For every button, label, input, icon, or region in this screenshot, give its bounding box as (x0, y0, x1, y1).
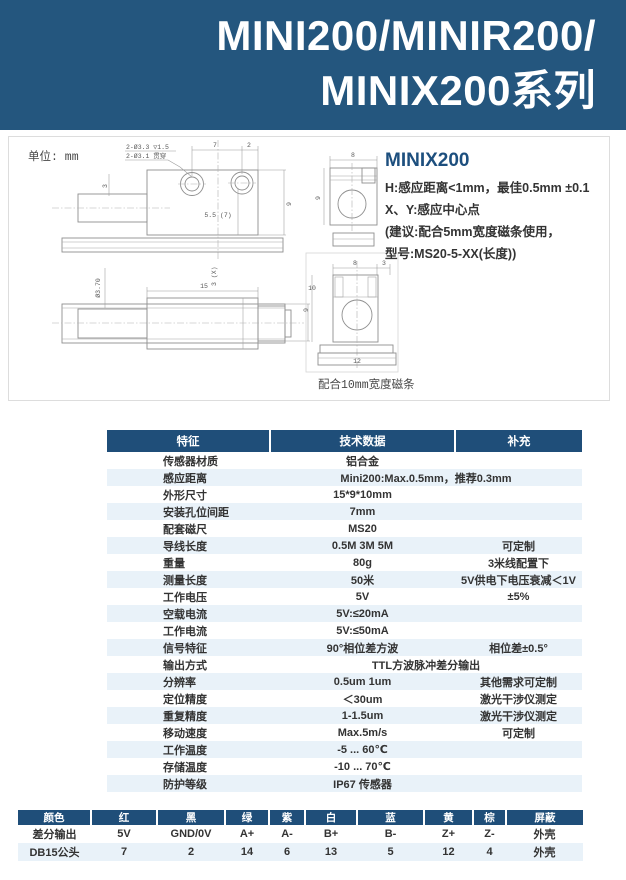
wiring-cell: 5V (91, 825, 157, 843)
spec-tech-cell: Mini200:Max.0.5mm，推荐0.3mm (270, 469, 582, 486)
spec-tech-cell: 7mm (270, 503, 455, 520)
wiring-header-cell: 紫 (269, 810, 305, 825)
spec-supp-cell (455, 741, 582, 758)
end-bottom-base: 12 (353, 358, 361, 365)
spec-supp-cell: ±5% (455, 588, 582, 605)
wiring-header-cell: 黄 (424, 810, 473, 825)
spec-row: 输出方式TTL方波脉冲差分输出 (107, 656, 582, 673)
wiring-cell: 外壳 (506, 843, 583, 861)
spec-row: 重量80g3米线配置下 (107, 554, 582, 571)
spec-feature-cell: 工作电压 (107, 588, 270, 605)
product-note-line2: X、Y:感应中心点 (385, 204, 622, 217)
product-note-line3: (建议:配合5mm宽度磁条使用， (385, 226, 622, 239)
end-view-top-drawing: 8 9 (315, 152, 377, 246)
spec-row: 存储温度-10 ... 70℃ (107, 758, 582, 775)
spec-row: 感应距离Mini200:Max.0.5mm，推荐0.3mm (107, 469, 582, 486)
spec-supp-cell: 其他需求可定制 (455, 673, 582, 690)
spec-row: 测量长度50米5V供电下电压衰减＜1V (107, 571, 582, 588)
wiring-cell: 12 (424, 843, 473, 861)
wiring-header-row: 颜色红黑绿紫白蓝黄棕屏蔽 (18, 810, 583, 825)
spec-tech-cell: -5 ... 60℃ (270, 741, 455, 758)
spec-tech-cell: IP67 传感器 (270, 775, 455, 792)
spec-tech-cell: 80g (270, 554, 455, 571)
spec-row: 防护等级IP67 传感器 (107, 775, 582, 792)
spec-row: 移动速度Max.5m/s可定制 (107, 724, 582, 741)
spec-feature-cell: 安装孔位间距 (107, 503, 270, 520)
wiring-header-cell: 绿 (225, 810, 269, 825)
end-bottom-width: 8 (353, 260, 357, 267)
spec-feature-cell: 传感器材质 (107, 452, 270, 469)
dim-depth: 5.5 (7) (204, 212, 231, 219)
dim-hole-pitch: 7 (213, 142, 217, 149)
spec-header-feature: 特征 (107, 430, 270, 452)
spec-supp-cell (455, 486, 582, 503)
spec-supp-cell: 5V供电下电压衰减＜1V (455, 571, 582, 588)
end-top-width: 8 (351, 152, 355, 159)
spec-tech-cell: 15*9*10mm (270, 486, 455, 503)
spec-feature-cell: 重量 (107, 554, 270, 571)
wiring-cell: Z- (473, 825, 506, 843)
end-view-bottom-drawing: 8 3 9 12 配合10mm宽度磁条 (303, 253, 415, 392)
wiring-cell: 外壳 (506, 825, 583, 843)
dim-edge: 2 (247, 142, 251, 149)
wiring-row: DB15公头72146135124外壳 (18, 843, 583, 861)
dim-x-offset: 3 (X) (211, 266, 218, 286)
spec-feature-cell: 工作温度 (107, 741, 270, 758)
wiring-header-cell: 蓝 (357, 810, 424, 825)
dim-left: 3 (102, 184, 109, 188)
spec-supp-cell: 3米线配置下 (455, 554, 582, 571)
dim-length-15: 15 (200, 283, 208, 290)
spec-supp-cell (455, 758, 582, 775)
strip-caption: 配合10mm宽度磁条 (318, 377, 415, 392)
wiring-header-cell: 黑 (157, 810, 225, 825)
dim-right: 9 (286, 202, 293, 206)
spec-feature-cell: 空载电流 (107, 605, 270, 622)
dim-cable-dia: Ø3.70 (94, 278, 102, 298)
spec-feature-cell: 输出方式 (107, 656, 270, 673)
spec-tech-cell: 0.5M 3M 5M (270, 537, 455, 554)
spec-header-supp: 补充 (455, 430, 582, 452)
spec-tech-cell: 5V:≤50mA (270, 622, 455, 639)
spec-row: 工作电流5V:≤50mA (107, 622, 582, 639)
page-title-line1: MINI200/MINIR200/ (0, 8, 596, 63)
spec-tech-cell: 1-1.5um (270, 707, 455, 724)
wiring-table: 颜色红黑绿紫白蓝黄棕屏蔽 差分输出5VGND/0VA+A-B+B-Z+Z-外壳D… (18, 810, 583, 861)
spec-supp-cell: 可定制 (455, 724, 582, 741)
unit-label: 单位: mm (28, 149, 79, 164)
wiring-row: 差分输出5VGND/0VA+A-B+B-Z+Z-外壳 (18, 825, 583, 843)
spec-supp-cell: 相位差±0.5° (455, 639, 582, 656)
spec-row: 工作温度-5 ... 60℃ (107, 741, 582, 758)
spec-feature-cell: 测量长度 (107, 571, 270, 588)
wiring-cell: 4 (473, 843, 506, 861)
spec-row: 分辨率0.5um 1um其他需求可定制 (107, 673, 582, 690)
page-title-line2: MINIX200系列 (0, 63, 596, 118)
wiring-cell: 14 (225, 843, 269, 861)
spec-feature-cell: 感应距离 (107, 469, 270, 486)
spec-row: 信号特征90°相位差方波相位差±0.5° (107, 639, 582, 656)
product-note-line4: 型号:MS20-5-XX(长度)) (385, 248, 622, 261)
spec-supp-cell: 激光干涉仪测定 (455, 707, 582, 724)
wiring-cell: 2 (157, 843, 225, 861)
wiring-cell: 13 (305, 843, 357, 861)
hole-note-2: 2-Ø3.1 贯穿 (126, 151, 166, 160)
wiring-cell: 7 (91, 843, 157, 861)
spec-supp-cell (455, 605, 582, 622)
wiring-cell: GND/0V (157, 825, 225, 843)
spec-tech-cell: TTL方波脉冲差分输出 (270, 656, 582, 673)
spec-supp-cell: 激光干涉仪测定 (455, 690, 582, 707)
wiring-cell: 5 (357, 843, 424, 861)
spec-feature-cell: 移动速度 (107, 724, 270, 741)
wiring-cell: DB15公头 (18, 843, 91, 861)
spec-row: 定位精度＜30um激光干涉仪测定 (107, 690, 582, 707)
spec-supp-cell (455, 622, 582, 639)
wiring-header-cell: 白 (305, 810, 357, 825)
spec-supp-cell: 可定制 (455, 537, 582, 554)
wiring-cell: Z+ (424, 825, 473, 843)
spec-tech-cell: ＜30um (270, 690, 455, 707)
spec-table-section: 特征 技术数据 补充 传感器材质铝合金感应距离Mini200:Max.0.5mm… (107, 430, 582, 792)
wiring-cell: A+ (225, 825, 269, 843)
spec-row: 配套磁尺MS20 (107, 520, 582, 537)
hole-note-1: 2-Ø3.3 ▽1.5 (126, 143, 169, 151)
spec-row: 传感器材质铝合金 (107, 452, 582, 469)
spec-feature-cell: 定位精度 (107, 690, 270, 707)
top-view-drawing: 2-Ø3.3 ▽1.5 2-Ø3.1 贯穿 7 2 5.5 (7) 3 9 (52, 140, 293, 259)
wiring-header-cell: 屏蔽 (506, 810, 583, 825)
spec-feature-cell: 导线长度 (107, 537, 270, 554)
wiring-cell: B- (357, 825, 424, 843)
spec-row: 安装孔位间距7mm (107, 503, 582, 520)
spec-supp-cell (455, 452, 582, 469)
wiring-cell: 差分输出 (18, 825, 91, 843)
side-view-drawing: 15 Ø3.70 3 (X) 10 (52, 266, 316, 349)
product-note-title: MINIX200 (385, 150, 622, 172)
spec-row: 工作电压5V±5% (107, 588, 582, 605)
spec-feature-cell: 信号特征 (107, 639, 270, 656)
spec-tech-cell: MS20 (270, 520, 455, 537)
spec-tech-cell: 5V (270, 588, 455, 605)
spec-tech-cell: 5V:≤20mA (270, 605, 455, 622)
spec-row: 空载电流5V:≤20mA (107, 605, 582, 622)
wiring-header-cell: 红 (91, 810, 157, 825)
end-top-height: 9 (315, 196, 322, 200)
spec-header-row: 特征 技术数据 补充 (107, 430, 582, 452)
spec-feature-cell: 重复精度 (107, 707, 270, 724)
spec-header-tech: 技术数据 (270, 430, 455, 452)
end-bottom-height: 9 (303, 308, 310, 312)
spec-tech-cell: 0.5um 1um (270, 673, 455, 690)
wiring-table-section: 颜色红黑绿紫白蓝黄棕屏蔽 差分输出5VGND/0VA+A-B+B-Z+Z-外壳D… (18, 810, 583, 861)
spec-row: 导线长度0.5M 3M 5M可定制 (107, 537, 582, 554)
product-note: MINIX200 H:感应距离<1mm，最佳0.5mm ±0.1 X、Y:感应中… (385, 150, 622, 270)
spec-feature-cell: 存储温度 (107, 758, 270, 775)
spec-supp-cell (455, 503, 582, 520)
spec-supp-cell (455, 520, 582, 537)
spec-tech-cell: -10 ... 70℃ (270, 758, 455, 775)
spec-feature-cell: 分辨率 (107, 673, 270, 690)
spec-row: 重复精度1-1.5um激光干涉仪测定 (107, 707, 582, 724)
spec-feature-cell: 工作电流 (107, 622, 270, 639)
spec-table: 特征 技术数据 补充 传感器材质铝合金感应距离Mini200:Max.0.5mm… (107, 430, 582, 792)
spec-tech-cell: 50米 (270, 571, 455, 588)
wiring-cell: B+ (305, 825, 357, 843)
spec-supp-cell (455, 775, 582, 792)
product-note-line1: H:感应距离<1mm，最佳0.5mm ±0.1 (385, 182, 622, 195)
wiring-header-cell: 颜色 (18, 810, 91, 825)
spec-feature-cell: 防护等级 (107, 775, 270, 792)
wiring-cell: A- (269, 825, 305, 843)
spec-tech-cell: 90°相位差方波 (270, 639, 455, 656)
wiring-cell: 6 (269, 843, 305, 861)
spec-row: 外形尺寸15*9*10mm (107, 486, 582, 503)
spec-tech-cell: Max.5m/s (270, 724, 455, 741)
spec-feature-cell: 配套磁尺 (107, 520, 270, 537)
datasheet-page: MINI200/MINIR200/ MINIX200系列 单位: mm 2-Ø3… (0, 0, 626, 880)
page-banner: MINI200/MINIR200/ MINIX200系列 (0, 0, 626, 130)
spec-feature-cell: 外形尺寸 (107, 486, 270, 503)
wiring-header-cell: 棕 (473, 810, 506, 825)
spec-tech-cell: 铝合金 (270, 452, 455, 469)
